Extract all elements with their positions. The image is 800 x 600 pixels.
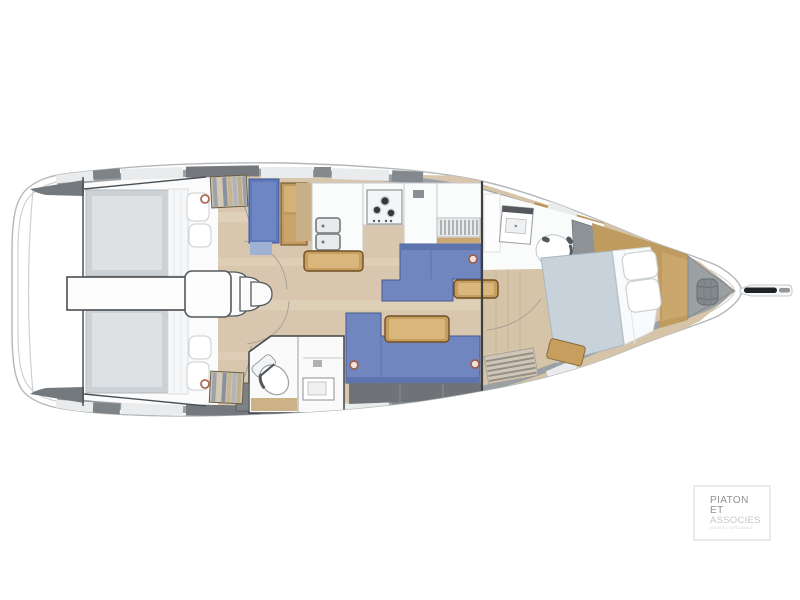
- svg-text:ASSOCIES: ASSOCIES: [710, 515, 761, 526]
- svg-text:ARCHITECTURE NAVALE: ARCHITECTURE NAVALE: [710, 526, 753, 530]
